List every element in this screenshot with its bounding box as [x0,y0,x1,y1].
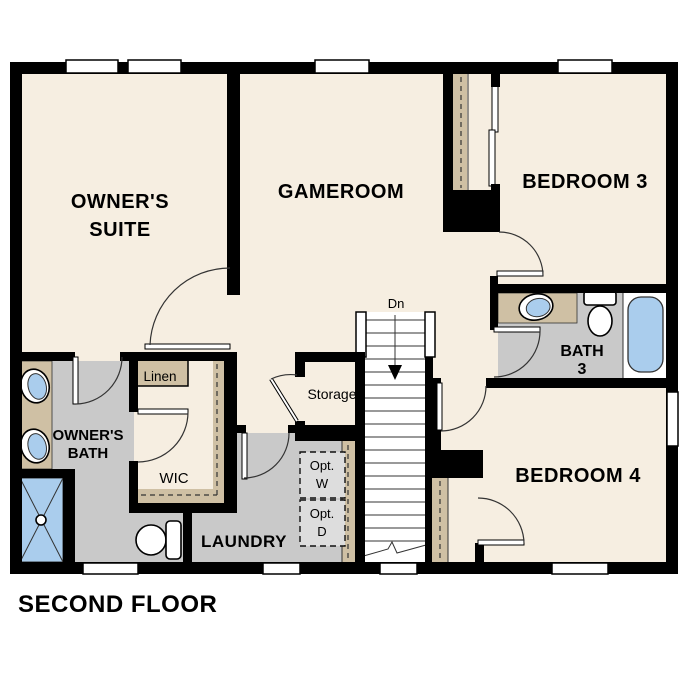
wall-segment [666,62,678,574]
window [83,563,138,574]
owners-bath-label: OWNER'S [52,427,123,444]
wall-segment [183,513,192,562]
wall-segment [10,62,22,574]
wall-segment [120,352,237,361]
stair-railing-left [356,312,366,357]
bypass-door-panel [489,130,495,186]
wic-shelf-right [213,361,224,503]
opt-washer-label2: W [316,476,329,491]
wic-shelf-bottom [138,489,224,503]
window [552,563,608,574]
gameroom-label: GAMEROOM [278,181,404,203]
wic-label: WIC [159,470,188,487]
window [315,60,369,73]
window [66,60,118,73]
bedroom4-closet [432,478,448,562]
stair-railing-right [425,312,435,357]
wall-segment [295,352,365,362]
bedroom3-label: BEDROOM 3 [522,171,648,193]
wall-segment [425,478,432,562]
bath3-label2: 3 [578,361,587,378]
bath3-label: BATH [560,343,603,360]
wall-segment [443,74,453,190]
chase-block [425,450,483,478]
stairs [356,312,435,562]
floor-plan-page: OWNER'S SUITE GAMEROOM BEDROOM 3 BEDROOM… [0,0,687,687]
window [667,392,678,446]
wall-segment [490,276,498,330]
opt-dryer-label: Opt. [310,506,335,521]
window [128,60,181,73]
storage-label: Storage [307,386,356,402]
opt-dryer-label2: D [317,524,326,539]
wall-segment [10,469,75,478]
wall-segment [295,431,365,441]
wall-segment [295,421,305,431]
wall-segment [475,543,484,562]
wall-segment [355,352,365,562]
bedroom4-label: BEDROOM 4 [515,465,641,487]
owners-bath-label2: BATH [68,445,109,462]
wall-segment [227,74,240,295]
wall-segment [129,461,138,508]
wall-segment [237,425,246,433]
wall-segment [491,74,500,87]
bathtub-icon [628,297,663,372]
wall-segment [224,361,237,513]
wall-segment [22,352,75,361]
owners-bath-toilet-icon [136,521,181,559]
wall-segment [425,357,433,378]
window [263,563,300,574]
wall-segment [129,503,237,513]
bath3-tub-area [623,293,666,378]
opt-washer-label: Opt. [310,458,335,473]
laundry-label: LAUNDRY [201,532,287,551]
plan-title: SECOND FLOOR [18,591,217,618]
owners-suite-label2: SUITE [89,219,150,241]
wall-segment [490,284,666,293]
floor-plan: OWNER'S SUITE GAMEROOM BEDROOM 3 BEDROOM… [0,0,687,687]
wall-segment [63,478,75,562]
laundry-area [300,433,357,562]
window [380,563,417,574]
owners-suite-label: OWNER'S [71,191,169,213]
shower-icon [20,478,63,562]
chase-block [443,190,500,232]
wall-segment [129,361,138,412]
wall-segment [486,378,666,388]
stairs-down-label: Dn [388,296,405,311]
bedroom3-closet-shelf [453,74,467,190]
linen-label: Linen [143,369,176,384]
window [558,60,612,73]
